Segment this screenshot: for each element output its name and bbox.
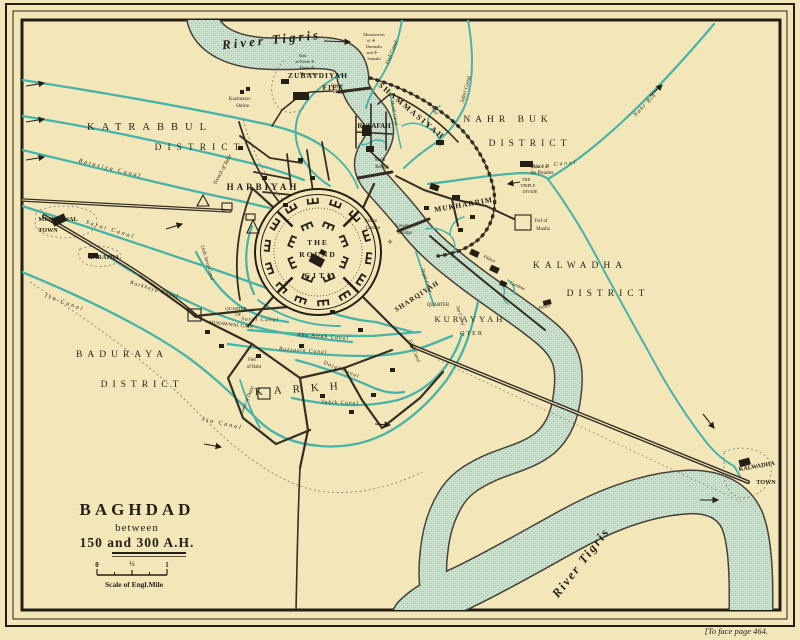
map-canvas: River TigrisRiver TigrisKATRABBULDISTRIC…	[0, 0, 800, 640]
map-label-4: NAHR BUK	[463, 115, 552, 125]
map-label-58: Kazimayn-	[229, 97, 252, 102]
plate-caption: [To face page 464.	[705, 626, 768, 636]
map-label-75: Palace	[365, 219, 378, 224]
map-title: BAGHDAD	[80, 500, 195, 519]
map-label-22: ROUND	[299, 250, 337, 259]
map-page: River TigrisRiver TigrisKATRABBULDISTRIC…	[0, 0, 800, 640]
map-label-64: Monasteries	[363, 32, 385, 37]
map-label-67: and ✛	[366, 50, 377, 55]
map-label-66: Durmalis	[366, 44, 383, 49]
map-label-24: MUHAWWAL	[38, 216, 77, 223]
map-label-32: Fief	[248, 358, 256, 363]
map-label-79: the Pleiades	[530, 171, 553, 176]
scale-tick-0: 0	[95, 561, 99, 569]
map-label-78: Palace of	[531, 165, 549, 170]
map-label-29: QUARTER	[225, 306, 247, 311]
map-label-13: HARBIYAH	[227, 182, 300, 192]
scale-tick-1: 1	[165, 561, 169, 569]
map-label-59: Shrine.	[236, 104, 250, 109]
map-label-23: CITY	[305, 271, 336, 280]
map-label-70: Bridge	[332, 90, 345, 95]
map-label-77: ✛	[387, 239, 392, 246]
map-label-76: Garden	[366, 226, 381, 231]
map-title-line3: 150 and 300 A.H.	[80, 535, 195, 550]
map-title-line2: between	[115, 522, 159, 534]
map-label-61: al-Kilab ✛	[295, 59, 314, 64]
map-label-3: DISTRICT	[155, 143, 246, 153]
map-label-71: Main	[375, 158, 386, 163]
map-label-69: Upper	[331, 84, 343, 89]
map-label-80: THE	[522, 177, 531, 182]
map-label-25: TOWN	[38, 227, 58, 234]
map-label-81: TRIPLE	[521, 183, 536, 188]
map-label-35: Mualla	[536, 227, 550, 232]
map-label-72: Bridge	[375, 165, 389, 170]
map-label-20: QUARTER	[427, 303, 450, 308]
scale-caption: Scale of Engl.Mile	[105, 580, 164, 589]
scale-tick-half: ½	[129, 560, 134, 568]
map-label-28: TOWN	[756, 479, 776, 486]
map-label-63: Monastery	[300, 71, 320, 76]
map-label-73: Lower	[395, 224, 408, 229]
map-label-11: KURAYYAH	[435, 314, 506, 324]
map-label-68: Samalu	[367, 56, 381, 61]
map-label-6: KALWADHA	[533, 261, 627, 271]
map-label-60: Dair	[299, 53, 307, 58]
map-label-34: Fief of	[535, 219, 548, 224]
map-label-12: QTER	[460, 331, 484, 337]
map-label-2: KATRABBUL	[87, 122, 213, 133]
map-label-5: DISTRICT	[489, 139, 572, 149]
map-label-74: Bridge	[398, 231, 412, 236]
map-label-33: of Rabi	[247, 365, 262, 370]
map-label-8: BADURAYA	[76, 350, 168, 360]
map-label-26: BARATHA	[89, 254, 120, 261]
map-label-21: THE	[307, 238, 329, 247]
map-label-62: Durta ✛	[300, 65, 315, 70]
map-label-9: DISTRICT	[101, 380, 184, 390]
map-label-7: DISTRICT	[567, 289, 650, 299]
map-label-17: RUSAFAH	[357, 122, 391, 130]
map-label-65: of ✛	[367, 38, 376, 43]
map-label-82: DIVIDE	[522, 189, 537, 194]
